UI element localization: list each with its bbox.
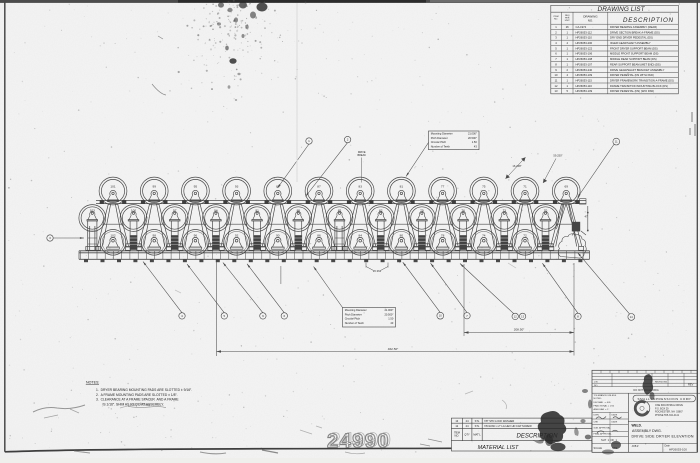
svg-text:95: 95 xyxy=(194,184,198,188)
svg-text:MATERIAL LIST: MATERIAL LIST xyxy=(478,445,519,451)
svg-text:94: 94 xyxy=(214,209,218,213)
svg-text:7/8″ STD LOCK WASHER: 7/8″ STD LOCK WASHER xyxy=(484,419,514,423)
svg-text:HP26053-108: HP26053-108 xyxy=(576,57,593,61)
svg-text:92: 92 xyxy=(235,234,239,238)
svg-text:WELD.: WELD. xyxy=(632,423,642,427)
svg-text:21.000″: 21.000″ xyxy=(468,132,477,136)
svg-text:MIDDLE FRONT SUPPORT BEAM (DS): MIDDLE FRONT SUPPORT BEAM (DS) xyxy=(610,52,658,56)
svg-text:99: 99 xyxy=(152,184,156,188)
svg-text:NOTED:: NOTED: xyxy=(594,398,603,400)
svg-text:86: 86 xyxy=(317,234,321,238)
svg-text:71: 71 xyxy=(523,184,527,188)
svg-text:87: 87 xyxy=(317,184,321,188)
svg-text:Pitch Diameter: Pitch Diameter xyxy=(345,312,362,316)
svg-text:FINAL APPROVAL: FINAL APPROVAL xyxy=(594,433,613,436)
svg-text:ITEM: ITEM xyxy=(554,16,559,18)
svg-text:73: 73 xyxy=(503,209,507,213)
svg-text:Circular Pitch: Circular Pitch xyxy=(345,317,361,321)
svg-text:96: 96 xyxy=(194,234,198,238)
svg-text:FRACTIONAL ± 1/16: FRACTIONAL ± 1/16 xyxy=(594,405,615,408)
svg-text:79: 79 xyxy=(420,209,424,213)
svg-text:HP26053-107: HP26053-107 xyxy=(576,62,593,66)
svg-text:DRY END DRYER PEDESTAL (DS): DRY END DRYER PEDESTAL (DS) xyxy=(610,36,653,40)
svg-text:DATE: DATE xyxy=(612,414,618,417)
svg-text:MAT’L: MAT’L xyxy=(473,432,481,436)
svg-text:NO.: NO. xyxy=(588,18,594,22)
svg-text:74: 74 xyxy=(482,234,486,238)
svg-text:2. A FRAME MOUNTING PADS ARE: 2. A FRAME MOUNTING PADS ARE SLOTTED ± 1… xyxy=(96,393,178,397)
svg-text:3. CLEARANCE AT A FRAME SPACE: 3. CLEARANCE AT A FRAME SPACER AND A FRA… xyxy=(96,398,179,402)
svg-text:10: 10 xyxy=(555,73,558,77)
svg-text:DRIVE SECTION BREAK A-FRAME (D: DRIVE SECTION BREAK A-FRAME (DS) xyxy=(610,30,660,34)
svg-text:DWN: DWN xyxy=(594,415,600,417)
svg-text:MIDDLE REAR SUPPORT BEAM (DS): MIDDLE REAR SUPPORT BEAM (DS) xyxy=(610,57,657,61)
svg-text:72: 72 xyxy=(523,234,527,238)
svg-text:ASSEMBLY DWG.: ASSEMBLY DWG. xyxy=(632,429,662,433)
svg-text:47: 47 xyxy=(585,215,589,219)
svg-text:14: 14 xyxy=(630,315,633,319)
svg-text:CHK: CHK xyxy=(594,421,599,423)
svg-text:DRYER BEARING ASSEMBLY (REAR): DRYER BEARING ASSEMBLY (REAR) xyxy=(610,25,657,29)
svg-text:NOTES:: NOTES: xyxy=(86,381,99,385)
svg-text:QTY: QTY xyxy=(464,432,470,436)
svg-text:82: 82 xyxy=(379,209,383,213)
svg-text:11: 11 xyxy=(555,79,558,83)
svg-text:7/8-9UNC x 2″ LG HEX HD CAP SC: 7/8-9UNC x 2″ LG HEX HD CAP SCREW xyxy=(484,424,532,428)
svg-text:ANGULAR ± 1°: ANGULAR ± 1° xyxy=(594,408,610,411)
svg-text:DESCRIPTION: DESCRIPTION xyxy=(623,17,674,24)
svg-text:103: 103 xyxy=(90,209,95,213)
svg-text:80: 80 xyxy=(400,234,404,238)
svg-text:REAR SUPPORT BEAM (WET END) (D: REAR SUPPORT BEAM (WET END) (DS) xyxy=(610,62,661,66)
svg-text:13: 13 xyxy=(555,89,558,93)
svg-text:JOB #: JOB # xyxy=(632,445,640,448)
svg-text:HP26053-110: HP26053-110 xyxy=(576,36,593,40)
svg-text:70: 70 xyxy=(544,209,548,213)
svg-text:STL: STL xyxy=(475,419,480,423)
svg-text:REV: REV xyxy=(688,383,694,387)
svg-text:PHONE 555-332-4141: PHONE 555-332-4141 xyxy=(655,414,680,417)
svg-text:88: 88 xyxy=(297,209,301,213)
svg-text:26.362: 26.362 xyxy=(373,269,382,273)
svg-text:HP26053-200: HP26053-200 xyxy=(576,41,593,45)
svg-text:26: 26 xyxy=(566,25,569,29)
svg-text:69: 69 xyxy=(564,184,568,188)
svg-text:HP26053-109: HP26053-109 xyxy=(576,89,593,93)
svg-text:HP26053-115: HP26053-115 xyxy=(576,79,593,83)
svg-text:L/N: L/N xyxy=(594,381,598,383)
svg-text:20.500″: 20.500″ xyxy=(468,136,477,140)
svg-text:24990: 24990 xyxy=(329,430,391,452)
svg-text:20.500″: 20.500″ xyxy=(384,312,393,316)
svg-text:HP26053-106: HP26053-106 xyxy=(576,52,593,56)
svg-text:462.50″: 462.50″ xyxy=(388,347,399,351)
svg-text:FRAME TRANSITION MOUNTING BLOC: FRAME TRANSITION MOUNTING BLOCK (DS) xyxy=(610,84,668,88)
svg-text:102: 102 xyxy=(110,234,115,238)
svg-text:DATE: DATE xyxy=(612,420,618,423)
svg-text:DRYER FRAMEWORK TRANSITION A-F: DRYER FRAMEWORK TRANSITION A-FRAME (DS) xyxy=(610,79,674,83)
svg-text:DRYER PEDESTAL (DS WITH PAD): DRYER PEDESTAL (DS WITH PAD) xyxy=(610,73,654,77)
svg-text:HP26053-112: HP26053-112 xyxy=(576,30,593,34)
svg-text:97: 97 xyxy=(173,209,177,213)
svg-text:Number of Teeth: Number of Teeth xyxy=(345,321,365,325)
svg-text:10: 10 xyxy=(439,314,442,318)
svg-text:Mounting Diameter: Mounting Diameter xyxy=(345,308,367,312)
svg-text:83: 83 xyxy=(358,184,362,188)
svg-text:HP26053-109: HP26053-109 xyxy=(576,73,593,77)
svg-text:NO.: NO. xyxy=(554,19,558,21)
svg-text:1. DRYER BEARING MOUNTING PAD: 1. DRYER BEARING MOUNTING PADS ARE SLOTT… xyxy=(96,388,192,392)
svg-text:208.50″: 208.50″ xyxy=(514,328,525,332)
svg-text:HP26053-116: HP26053-116 xyxy=(576,84,593,88)
svg-text:REVISIONS: REVISIONS xyxy=(655,381,667,383)
svg-text:76: 76 xyxy=(461,209,465,213)
svg-text:NO.: NO. xyxy=(594,385,598,387)
svg-text:98: 98 xyxy=(152,234,156,238)
svg-text:TOLERANCE UNLESS: TOLERANCE UNLESS xyxy=(594,394,617,397)
svg-text:101: 101 xyxy=(110,184,115,188)
svg-text:Pitch Diameter: Pitch Diameter xyxy=(431,136,448,140)
svg-text:16.248″: 16.248″ xyxy=(512,164,521,168)
svg-text:78: 78 xyxy=(441,234,445,238)
svg-text:Circular Pitch: Circular Pitch xyxy=(431,140,447,144)
svg-text:100: 100 xyxy=(131,209,136,213)
svg-text:SCALE: SCALE xyxy=(594,446,603,450)
svg-text:HP26053-100: HP26053-100 xyxy=(669,447,687,451)
svg-text:DRIVE SIDE DRYER ELEVATION: DRIVE SIDE DRYER ELEVATION xyxy=(632,434,694,438)
svg-text:SUB. APPROVAL: SUB. APPROVAL xyxy=(594,426,612,429)
svg-text:93: 93 xyxy=(235,184,239,188)
svg-text:FRONT DRYER SUPPORT BEAM (DS): FRONT DRYER SUPPORT BEAM (DS) xyxy=(610,46,658,50)
svg-text:IDLER GEAR/SHAFT ASSEMBLY: IDLER GEAR/SHAFT ASSEMBLY xyxy=(610,41,651,45)
svg-text:DECIMAL ± .005: DECIMAL ± .005 xyxy=(594,401,612,404)
svg-text:1.50: 1.50 xyxy=(472,140,478,144)
svg-text:91: 91 xyxy=(255,209,259,213)
svg-text:59.250″: 59.250″ xyxy=(553,154,562,158)
svg-text:IS 1/16″. SHIM AS REQ’D AT ASS: IS 1/16″. SHIM AS REQ’D AT ASSEMBLY. xyxy=(103,402,165,406)
svg-text:75: 75 xyxy=(482,184,486,188)
svg-text:BREAK: BREAK xyxy=(357,154,366,157)
svg-text:STL: STL xyxy=(475,424,480,428)
svg-text:84: 84 xyxy=(358,234,362,238)
svg-text:DRIVE GEAR/SHAFT BRACKET ASSEM: DRIVE GEAR/SHAFT BRACKET ASSEMBLY xyxy=(610,68,665,72)
svg-text:CA-1974: CA-1974 xyxy=(576,25,587,29)
svg-text:UNIT: UNIT xyxy=(565,20,571,22)
svg-text:1.50: 1.50 xyxy=(388,317,394,321)
svg-text:DRYER PEDESTAL (DS) (W/O PAD): DRYER PEDESTAL (DS) (W/O PAD) xyxy=(610,89,654,93)
svg-text:77: 77 xyxy=(441,184,445,188)
svg-text:DRAWING LIST: DRAWING LIST xyxy=(598,6,646,13)
svg-text:90: 90 xyxy=(276,234,280,238)
svg-text:Mounting Diameter: Mounting Diameter xyxy=(431,132,453,136)
svg-text:HP26053-240: HP26053-240 xyxy=(576,68,593,72)
svg-text:SMALL IMPRESSIONS CORP.: SMALL IMPRESSIONS CORP. xyxy=(638,397,692,401)
svg-text:Number of Teeth: Number of Teeth xyxy=(431,145,451,149)
svg-text:HP26053-122: HP26053-122 xyxy=(576,46,593,50)
svg-text:11: 11 xyxy=(615,140,618,144)
svg-text:85: 85 xyxy=(338,209,342,213)
svg-text:12: 12 xyxy=(555,84,558,88)
svg-text:81: 81 xyxy=(400,184,404,188)
